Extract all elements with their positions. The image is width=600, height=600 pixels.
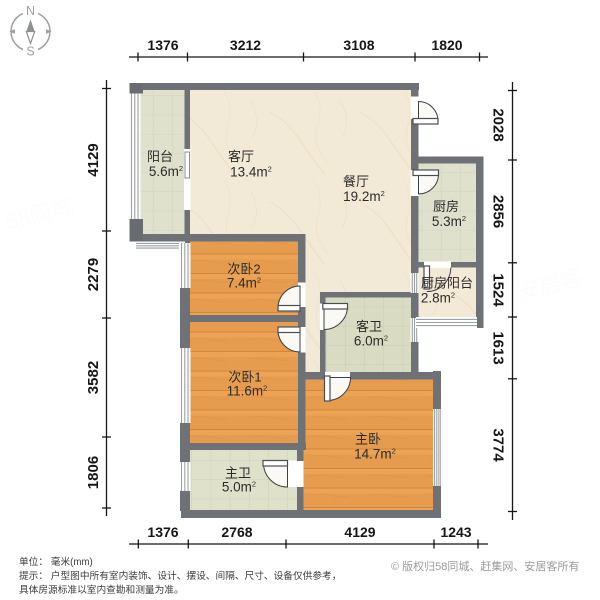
- svg-text:次卧1: 次卧1: [228, 370, 261, 385]
- svg-text:3212: 3212: [230, 37, 261, 53]
- svg-text:4129: 4129: [344, 524, 375, 540]
- svg-text:5.6m2: 5.6m2: [149, 164, 183, 179]
- svg-text:1243: 1243: [440, 524, 471, 540]
- svg-text:© 版权归58同城、赶集网、安居客所有: © 版权归58同城、赶集网、安居客所有: [391, 559, 579, 573]
- svg-text:主卧: 主卧: [355, 432, 381, 447]
- svg-text:7.4m2: 7.4m2: [227, 276, 261, 291]
- svg-text:1806: 1806: [85, 456, 102, 489]
- svg-text:5.3m2: 5.3m2: [432, 214, 466, 229]
- svg-text:具体房源标准以室内查勘和测量为准。: 具体房源标准以室内查勘和测量为准。: [19, 583, 184, 596]
- svg-text:6.0m2: 6.0m2: [354, 334, 388, 349]
- svg-text:13.4m2: 13.4m2: [230, 165, 272, 180]
- svg-text:厨房: 厨房: [433, 199, 459, 214]
- svg-text:1524: 1524: [490, 273, 507, 307]
- svg-text:5.0m2: 5.0m2: [222, 480, 256, 495]
- svg-text:14.7m2: 14.7m2: [354, 447, 396, 462]
- svg-text:1820: 1820: [431, 37, 462, 53]
- svg-text:2856: 2856: [490, 195, 507, 228]
- svg-text:1613: 1613: [490, 331, 507, 364]
- svg-text:客厅: 客厅: [228, 149, 254, 164]
- svg-text:餐厅: 餐厅: [343, 174, 369, 189]
- svg-text:2768: 2768: [221, 524, 252, 540]
- svg-text:厨房阳台: 厨房阳台: [421, 276, 473, 291]
- svg-text:N: N: [26, 4, 35, 18]
- svg-text:次卧2: 次卧2: [227, 262, 260, 277]
- svg-text:3582: 3582: [85, 361, 102, 394]
- svg-text:11.6m2: 11.6m2: [227, 384, 268, 399]
- svg-text:2279: 2279: [85, 258, 102, 291]
- svg-text:S: S: [26, 45, 34, 59]
- svg-text:3774: 3774: [490, 428, 507, 462]
- svg-text:单位： 毫米(mm): 单位： 毫米(mm): [19, 555, 93, 568]
- svg-text:客卫: 客卫: [356, 319, 382, 334]
- svg-text:主卫: 主卫: [225, 466, 251, 481]
- svg-text:1376: 1376: [147, 524, 178, 540]
- svg-text:19.2m2: 19.2m2: [343, 189, 385, 204]
- svg-text:阳台: 阳台: [147, 149, 173, 164]
- svg-text:提示： 户型图中所有室内装饰、设计、摆设、间隔、尺寸、设备仅: 提示： 户型图中所有室内装饰、设计、摆设、间隔、尺寸、设备仅供参考，: [19, 569, 341, 582]
- svg-text:1376: 1376: [147, 37, 178, 53]
- svg-text:4129: 4129: [85, 143, 102, 176]
- svg-text:2028: 2028: [490, 108, 507, 141]
- svg-text:3108: 3108: [343, 37, 374, 53]
- svg-text:2.8m2: 2.8m2: [421, 291, 455, 306]
